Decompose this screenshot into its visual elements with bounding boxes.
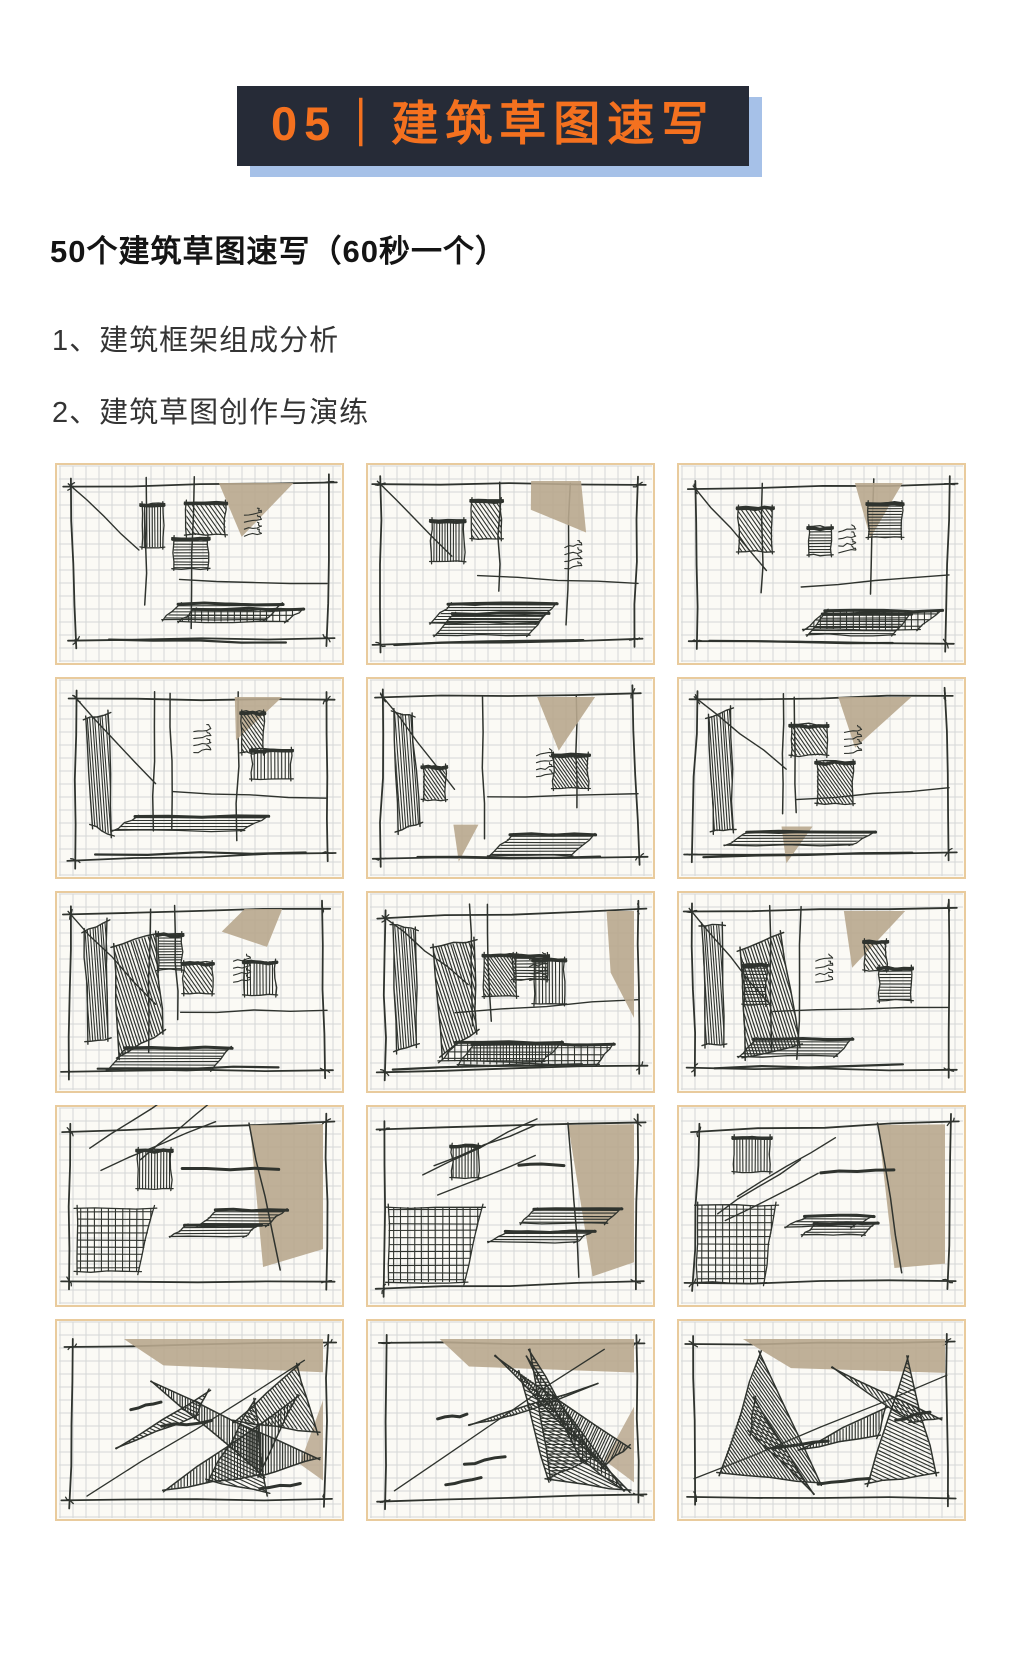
- subtitle: 50个建筑草图速写（60秒一个）: [50, 226, 1024, 271]
- sketch-panel: [677, 677, 966, 879]
- sketch-panel: [55, 891, 344, 1093]
- sketch-panel: [366, 891, 655, 1093]
- sketch-panel: [366, 677, 655, 879]
- sketch-panel: [55, 1105, 344, 1307]
- topic-list: 1、建筑框架组成分析 2、建筑草图创作与演练: [0, 317, 1024, 431]
- sketch-panel: [677, 1319, 966, 1521]
- sketch-panel: [366, 1105, 655, 1307]
- sketch-panel: [677, 891, 966, 1093]
- sketch-gallery: [55, 463, 1024, 1521]
- sketch-panel: [366, 463, 655, 665]
- sketch-panel: [55, 1319, 344, 1521]
- sketch-panel: [677, 463, 966, 665]
- banner-title: 05｜建筑草图速写: [271, 97, 715, 150]
- list-item-1: 1、建筑框架组成分析: [52, 317, 1024, 359]
- section-banner: 05｜建筑草图速写: [237, 86, 749, 166]
- sketch-panel: [55, 463, 344, 665]
- section-banner-wrap: 05｜建筑草图速写: [237, 86, 1024, 166]
- list-item-2: 2、建筑草图创作与演练: [52, 389, 1024, 431]
- sketch-panel: [366, 1319, 655, 1521]
- sketch-panel: [677, 1105, 966, 1307]
- sketch-panel: [55, 677, 344, 879]
